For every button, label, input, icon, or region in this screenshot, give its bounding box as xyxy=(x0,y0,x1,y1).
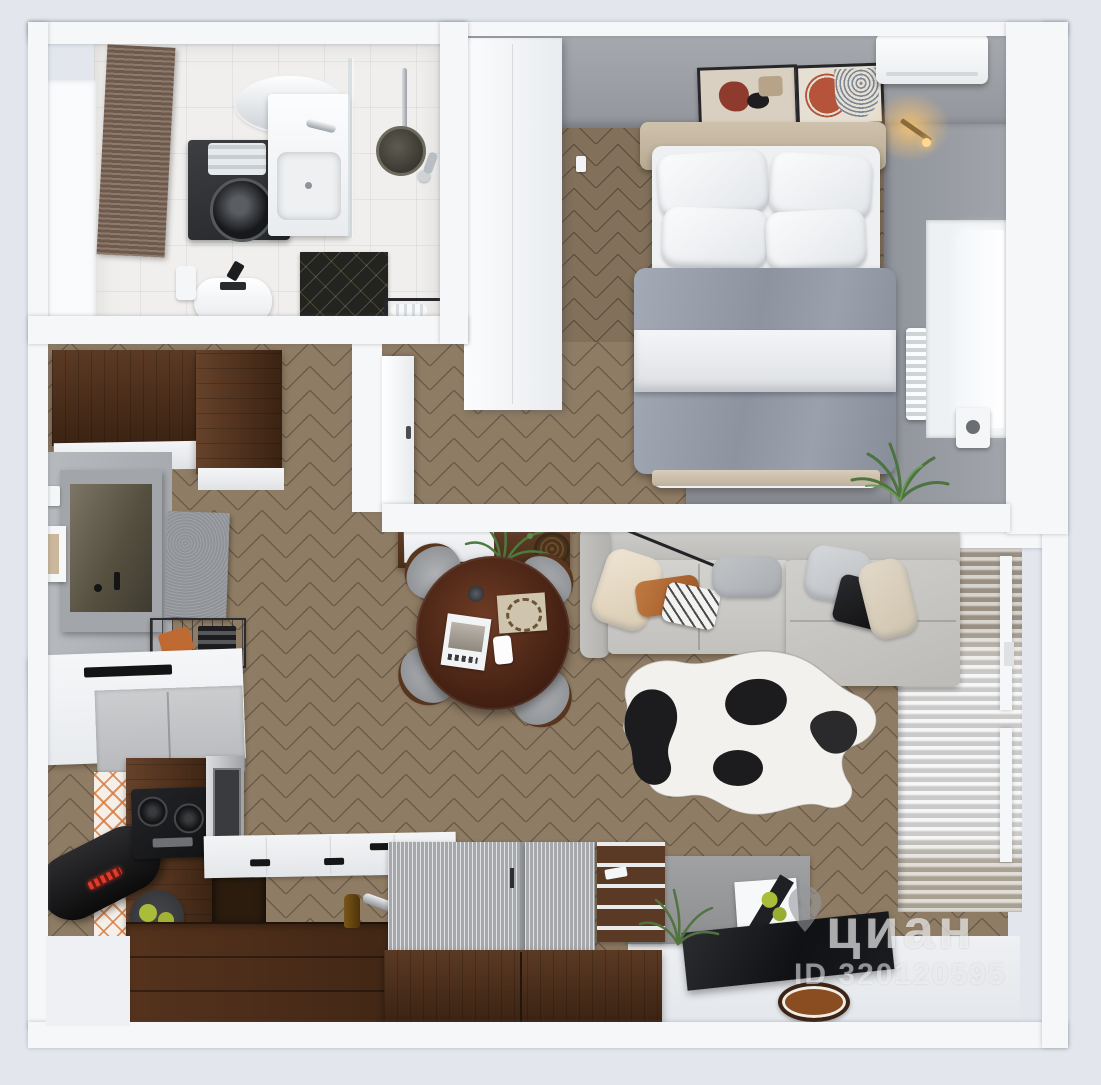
wardrobe-seam xyxy=(512,44,513,404)
shower-glass-partition xyxy=(348,58,352,238)
pillow-front-left xyxy=(661,206,769,270)
floorplan-render: циан ID 320120595 xyxy=(0,0,1101,1085)
kitchen-switch xyxy=(46,486,60,506)
island-plant xyxy=(634,882,722,954)
bathroom-slat-panel xyxy=(97,44,176,257)
dining-table xyxy=(416,556,570,710)
light-switch xyxy=(576,156,586,172)
toilet-flush-plate xyxy=(220,282,246,290)
bathroom-recess xyxy=(40,80,96,326)
glass-faucet-mark xyxy=(114,572,120,590)
run-seam-1 xyxy=(266,837,268,875)
bathroom xyxy=(28,22,468,344)
bath-canister xyxy=(176,266,196,300)
location-pin-icon xyxy=(788,886,822,932)
pillow-front-right xyxy=(764,207,867,272)
bedroom xyxy=(440,22,1068,534)
hood-display xyxy=(87,867,123,890)
upper-cabinet-a xyxy=(52,350,200,446)
outer-wall-left xyxy=(28,22,48,1030)
window-frame-strip-1 xyxy=(1000,556,1012,710)
magazine-cover xyxy=(448,622,485,652)
burner-2 xyxy=(173,803,204,834)
bedroom-window-frame xyxy=(926,220,1010,438)
counter-niche xyxy=(212,872,266,926)
shower-head xyxy=(376,126,426,176)
radiator xyxy=(906,328,928,420)
magazine-title-bars xyxy=(447,654,478,664)
island-front-doors xyxy=(384,950,662,1024)
island-door-seam xyxy=(520,952,522,1022)
placemat-wreath xyxy=(505,597,543,633)
bath-mat xyxy=(300,252,388,324)
washer-drum xyxy=(210,178,274,242)
upper-cabinet-b xyxy=(196,350,282,474)
glass-knob-mark xyxy=(94,584,102,592)
cowhide-rug xyxy=(596,638,888,824)
watermark-brand: циан xyxy=(826,896,976,961)
bathroom-right-wall xyxy=(440,22,468,344)
pinboard xyxy=(164,511,230,619)
kitchen-window-glass xyxy=(70,484,152,612)
art1-tan-shape xyxy=(758,76,783,97)
bathroom-bottom-wall xyxy=(28,316,468,344)
ac-vent xyxy=(886,72,978,76)
sink-bottle xyxy=(344,894,360,928)
sofa-cushion-gray xyxy=(712,556,782,598)
burner-1 xyxy=(137,796,168,827)
cabinet-handle-2 xyxy=(324,858,344,865)
art1-red-shape xyxy=(718,81,749,112)
watermark: циан ID 320120595 xyxy=(768,878,1058,1008)
cabinet-shelf-b xyxy=(198,468,284,490)
cooktop xyxy=(131,787,209,860)
run-seam-2 xyxy=(330,836,332,874)
living-divider-wall xyxy=(382,504,1010,532)
watermark-id: ID 320120595 xyxy=(794,958,1007,992)
table-magazine xyxy=(441,613,492,671)
cooktop-control xyxy=(153,837,193,847)
window-frame-connector xyxy=(1004,642,1014,666)
bedroom-window-light xyxy=(960,230,1004,428)
bedroom-plant xyxy=(846,436,954,512)
island-top-a xyxy=(388,842,520,950)
shelf-item xyxy=(604,866,627,880)
island-handle xyxy=(510,868,514,888)
window-frame-strip-2 xyxy=(1000,728,1012,862)
table-cup xyxy=(468,586,484,602)
kitchen-bottom-left-floor xyxy=(46,936,130,1026)
sink-drain xyxy=(305,182,312,189)
island-top-b xyxy=(525,842,595,950)
table-phone xyxy=(493,635,514,665)
dining-area xyxy=(396,516,586,726)
storage-island xyxy=(384,842,724,1040)
ac-unit xyxy=(876,34,988,84)
table-placemat xyxy=(497,592,548,633)
cabinet-handle-1 xyxy=(250,859,270,866)
bedroom-right-thick-wall xyxy=(1006,22,1068,534)
apple-1 xyxy=(139,904,157,922)
sink-vanity xyxy=(268,94,350,236)
washer-towels xyxy=(208,143,266,175)
wall-lamp-bulb xyxy=(922,138,931,147)
kitchen-window-frame xyxy=(60,470,162,632)
thermostat-dial xyxy=(966,420,980,434)
bathroom-top-wall xyxy=(28,22,466,44)
bedroom-wardrobe xyxy=(464,38,562,410)
towel-roll xyxy=(391,304,427,316)
small-frame-print xyxy=(47,534,59,574)
thermostat xyxy=(956,408,990,448)
outer-wall-bottom xyxy=(28,1022,1068,1048)
bed-blanket-band xyxy=(634,330,896,392)
